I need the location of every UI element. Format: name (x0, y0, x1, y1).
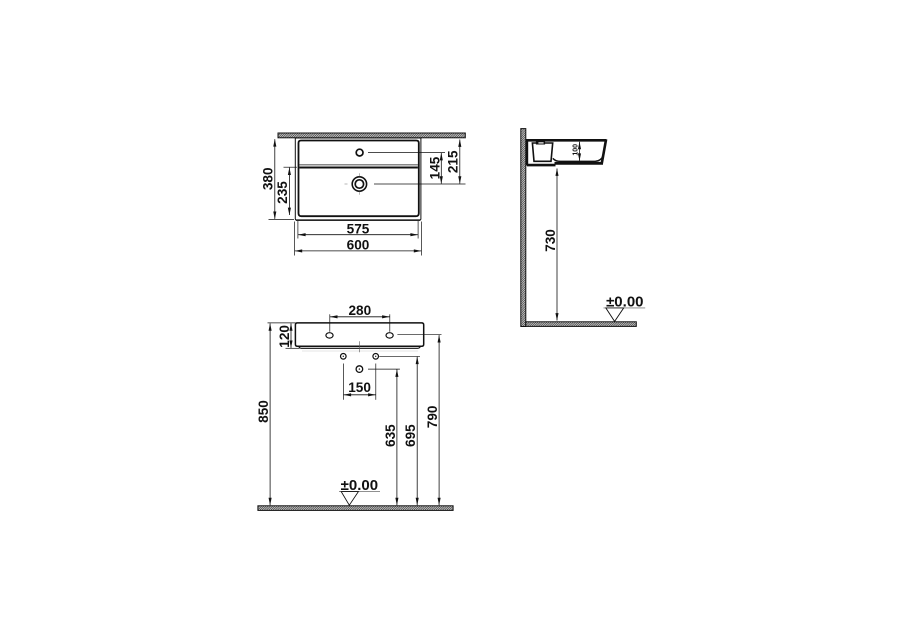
svg-text:575: 575 (347, 221, 370, 236)
svg-text:215: 215 (446, 150, 461, 173)
svg-text:635: 635 (383, 424, 398, 447)
svg-text:790: 790 (425, 406, 440, 429)
svg-text:100: 100 (573, 144, 580, 156)
svg-text:600: 600 (347, 238, 370, 253)
svg-text:730: 730 (543, 229, 558, 252)
svg-text:695: 695 (403, 424, 418, 447)
svg-text:380: 380 (261, 167, 276, 190)
svg-text:120: 120 (277, 325, 292, 348)
svg-text:150: 150 (348, 380, 371, 395)
svg-text:850: 850 (256, 400, 271, 423)
svg-text:280: 280 (348, 303, 371, 318)
svg-text:145: 145 (427, 156, 442, 179)
svg-text:235: 235 (275, 181, 290, 204)
